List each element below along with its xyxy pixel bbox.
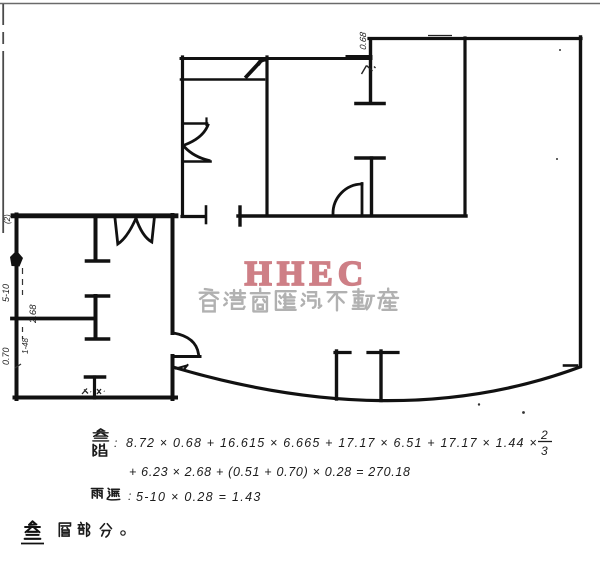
svg-text:3: 3 [541,444,548,458]
svg-text:(2): (2) [3,214,12,224]
svg-text::: : [114,436,117,450]
svg-text:5-10: 5-10 [1,284,11,302]
svg-text:2.68: 2.68 [28,304,39,324]
svg-text:0.68: 0.68 [358,31,368,50]
svg-text:HHEC: HHEC [245,254,369,293]
svg-text:0.70: 0.70 [1,347,11,365]
svg-text:5-10 × 0.28 = 1.43: 5-10 × 0.28 = 1.43 [136,490,262,504]
svg-text:+ 6.23 × 2.68 + (0.51 + 0.70): + 6.23 × 2.68 + (0.51 + 0.70) × 0.28 = 2… [129,465,411,479]
svg-text:2: 2 [540,428,548,442]
svg-text:8.72 × 0.68 + 16.615 × 6.665 +: 8.72 × 0.68 + 16.615 × 6.665 + 17.17 × 6… [126,436,538,450]
svg-text:1-48: 1-48 [21,337,30,354]
svg-text::: : [128,489,131,503]
